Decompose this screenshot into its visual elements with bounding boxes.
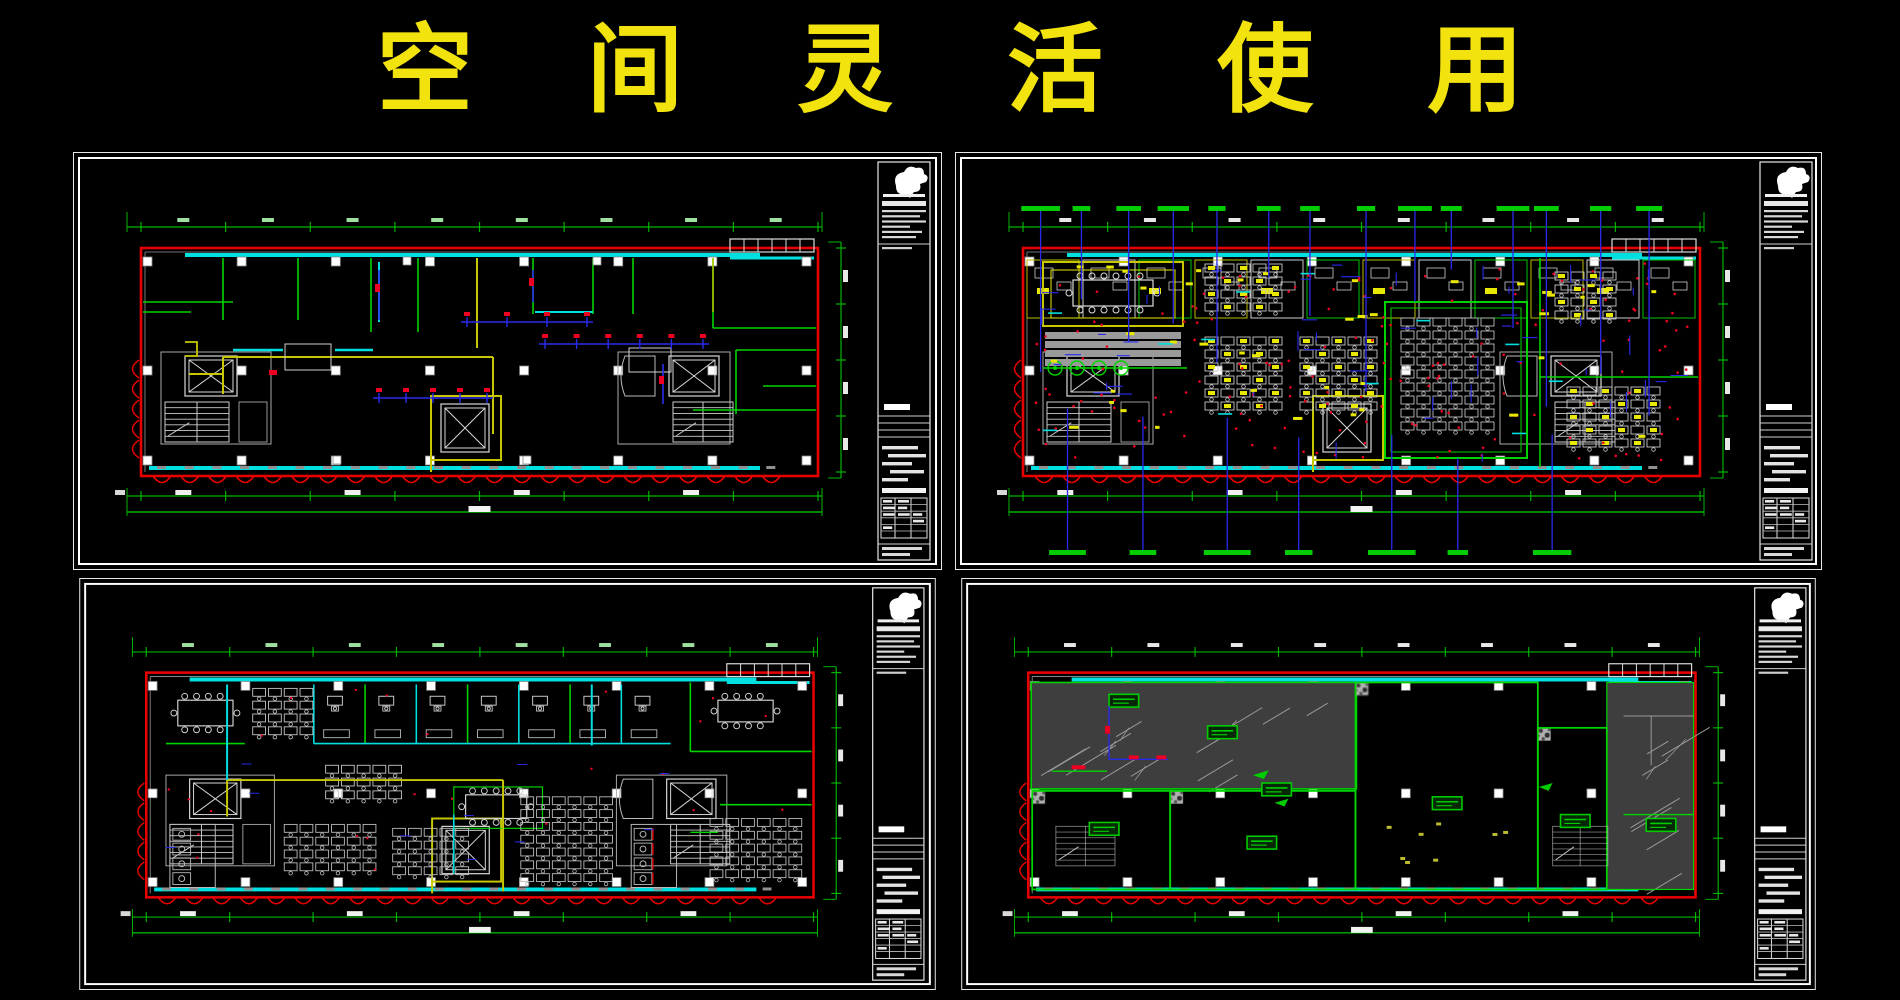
page-title: 空 间 灵 活 使 用 xyxy=(0,0,1900,131)
sheet-detailed-layout-plan[interactable] xyxy=(955,152,1822,570)
sheet-furniture-layout-plan[interactable] xyxy=(73,578,942,990)
detailed-layout-drawing xyxy=(955,152,1822,570)
sheet-structure-plan[interactable] xyxy=(73,152,942,570)
structure-plan-drawing xyxy=(73,152,942,570)
floor-finish-drawing xyxy=(955,578,1822,990)
sheet-floor-finish-plan[interactable] xyxy=(955,578,1822,990)
furniture-layout-drawing xyxy=(73,578,942,990)
sheet-collage-canvas: 空 间 灵 活 使 用 xyxy=(0,0,1900,1000)
